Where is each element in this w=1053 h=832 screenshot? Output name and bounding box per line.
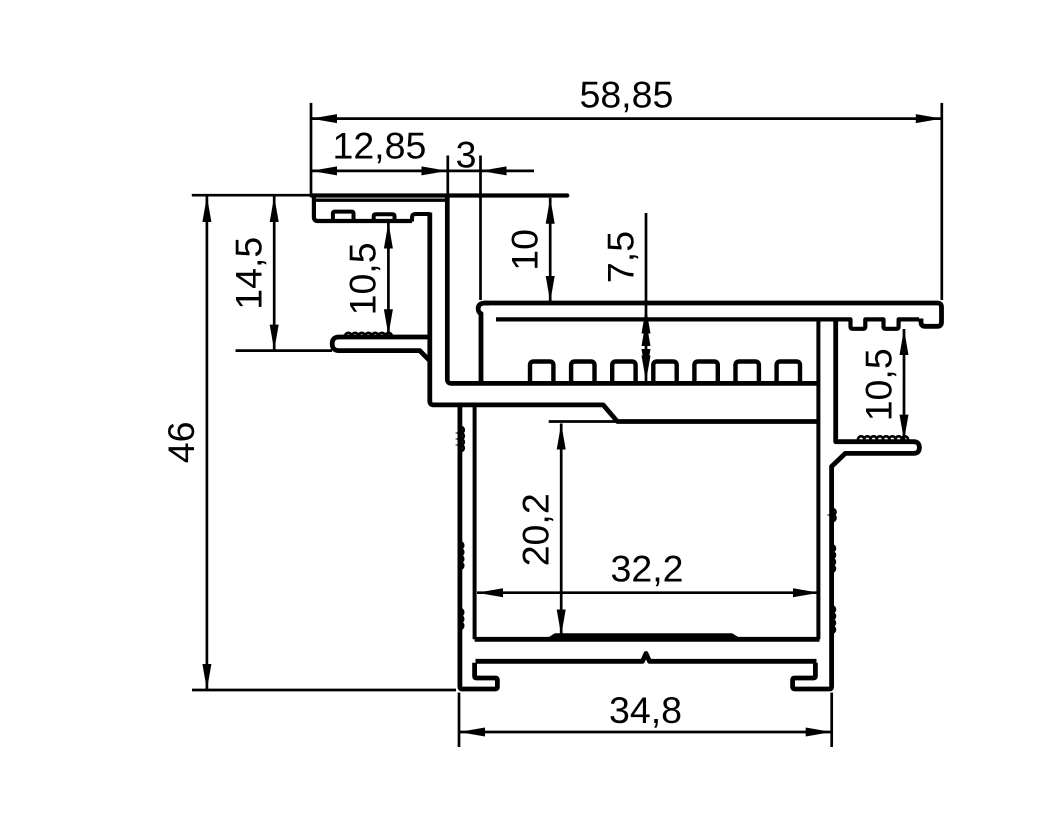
svg-text:10,5: 10,5 xyxy=(342,242,384,315)
svg-text:14,5: 14,5 xyxy=(228,237,270,310)
svg-text:32,2: 32,2 xyxy=(611,547,684,589)
svg-text:10,5: 10,5 xyxy=(857,348,899,421)
svg-text:10: 10 xyxy=(504,229,546,271)
svg-text:20,2: 20,2 xyxy=(515,493,557,566)
svg-text:34,8: 34,8 xyxy=(609,689,682,731)
svg-text:58,85: 58,85 xyxy=(579,73,673,115)
svg-text:12,85: 12,85 xyxy=(332,124,426,166)
svg-text:7,5: 7,5 xyxy=(599,231,641,283)
svg-text:46: 46 xyxy=(160,422,202,464)
svg-text:3: 3 xyxy=(456,134,477,176)
